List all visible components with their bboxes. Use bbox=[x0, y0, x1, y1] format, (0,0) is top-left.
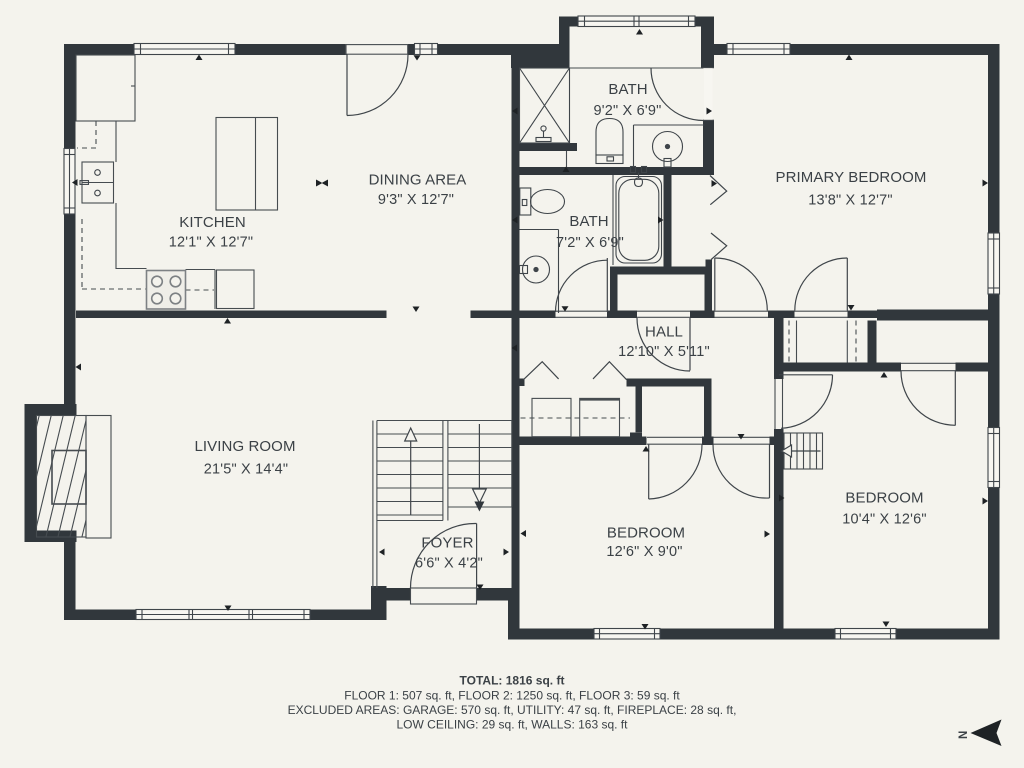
svg-text:FLOOR 1: 507 sq. ft, FLOOR 2:: FLOOR 1: 507 sq. ft, FLOOR 2: 1250 sq. f… bbox=[344, 689, 680, 703]
svg-text:BATH: BATH bbox=[608, 81, 647, 98]
svg-text:12'6" X 9'0": 12'6" X 9'0" bbox=[606, 544, 682, 560]
svg-text:10'4" X 12'6": 10'4" X 12'6" bbox=[842, 512, 927, 528]
svg-text:PRIMARY BEDROOM: PRIMARY BEDROOM bbox=[776, 169, 927, 186]
svg-text:13'8" X 12'7": 13'8" X 12'7" bbox=[808, 193, 893, 209]
svg-text:BATH: BATH bbox=[569, 213, 608, 230]
svg-text:EXCLUDED AREAS: GARAGE: 570 sq: EXCLUDED AREAS: GARAGE: 570 sq. ft, UTIL… bbox=[288, 703, 737, 717]
svg-text:7'2" X 6'9": 7'2" X 6'9" bbox=[556, 235, 624, 251]
svg-text:21'5" X 14'4": 21'5" X 14'4" bbox=[204, 462, 289, 478]
svg-text:6'6" X 4'2": 6'6" X 4'2" bbox=[415, 556, 483, 572]
svg-text:12'10" X 5'11": 12'10" X 5'11" bbox=[618, 344, 710, 360]
svg-text:BEDROOM: BEDROOM bbox=[845, 490, 923, 507]
svg-text:HALL: HALL bbox=[645, 324, 683, 341]
svg-text:BEDROOM: BEDROOM bbox=[607, 525, 685, 542]
svg-text:FOYER: FOYER bbox=[421, 535, 473, 552]
svg-text:KITCHEN: KITCHEN bbox=[179, 214, 246, 231]
svg-text:9'2" X 6'9": 9'2" X 6'9" bbox=[593, 103, 661, 119]
svg-text:N: N bbox=[958, 731, 970, 739]
svg-text:9'3" X 12'7": 9'3" X 12'7" bbox=[378, 192, 454, 208]
svg-text:DINING AREA: DINING AREA bbox=[369, 172, 467, 189]
svg-text:LIVING ROOM: LIVING ROOM bbox=[194, 438, 295, 455]
svg-text:12'1" X 12'7": 12'1" X 12'7" bbox=[169, 235, 254, 251]
svg-text:LOW CEILING: 29 sq. ft, WALLS:: LOW CEILING: 29 sq. ft, WALLS: 163 sq. f… bbox=[397, 718, 629, 732]
svg-text:TOTAL: 1816 sq. ft: TOTAL: 1816 sq. ft bbox=[460, 674, 565, 688]
